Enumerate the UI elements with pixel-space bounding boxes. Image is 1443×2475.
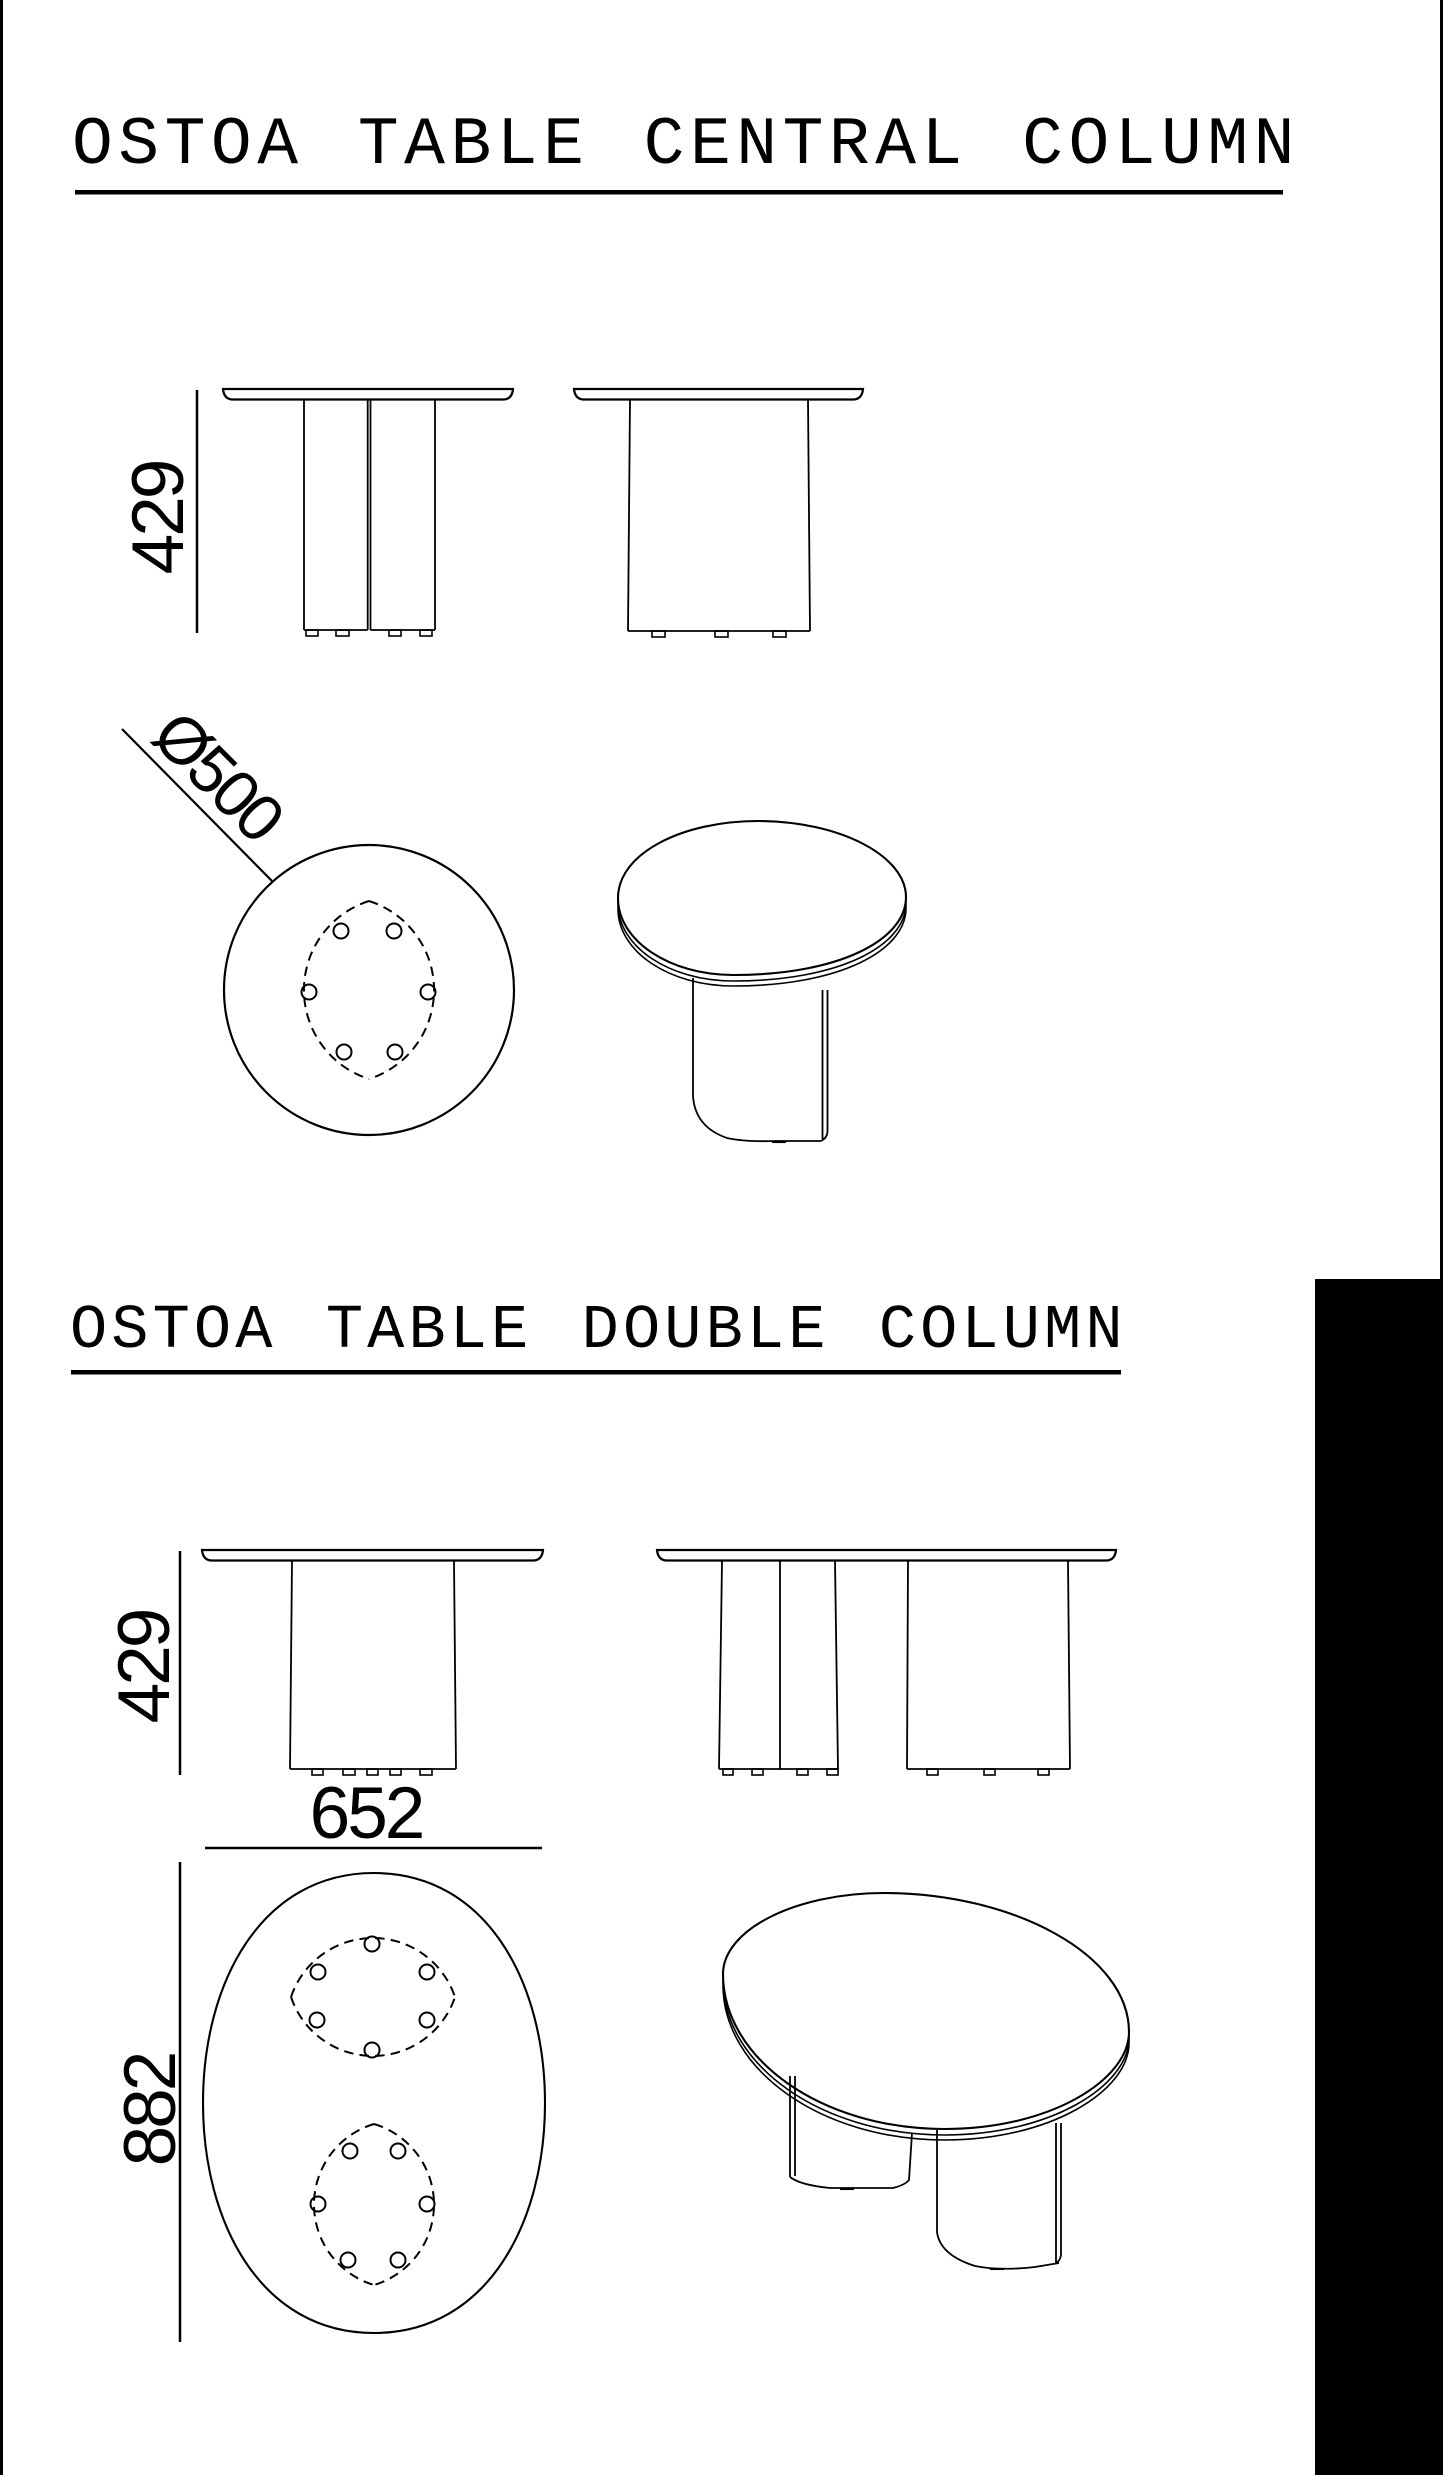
svg-text:882: 882 (110, 2054, 191, 2167)
svg-text:652: 652 (310, 1773, 423, 1854)
svg-text:429: 429 (104, 1610, 185, 1723)
svg-text:OSTOA TABLE CENTRAL COLUMN: OSTOA TABLE CENTRAL COLUMN (72, 107, 1300, 184)
svg-text:OSTOA TABLE DOUBLE COLUMN: OSTOA TABLE DOUBLE COLUMN (70, 1295, 1127, 1366)
svg-text:429: 429 (118, 461, 199, 574)
